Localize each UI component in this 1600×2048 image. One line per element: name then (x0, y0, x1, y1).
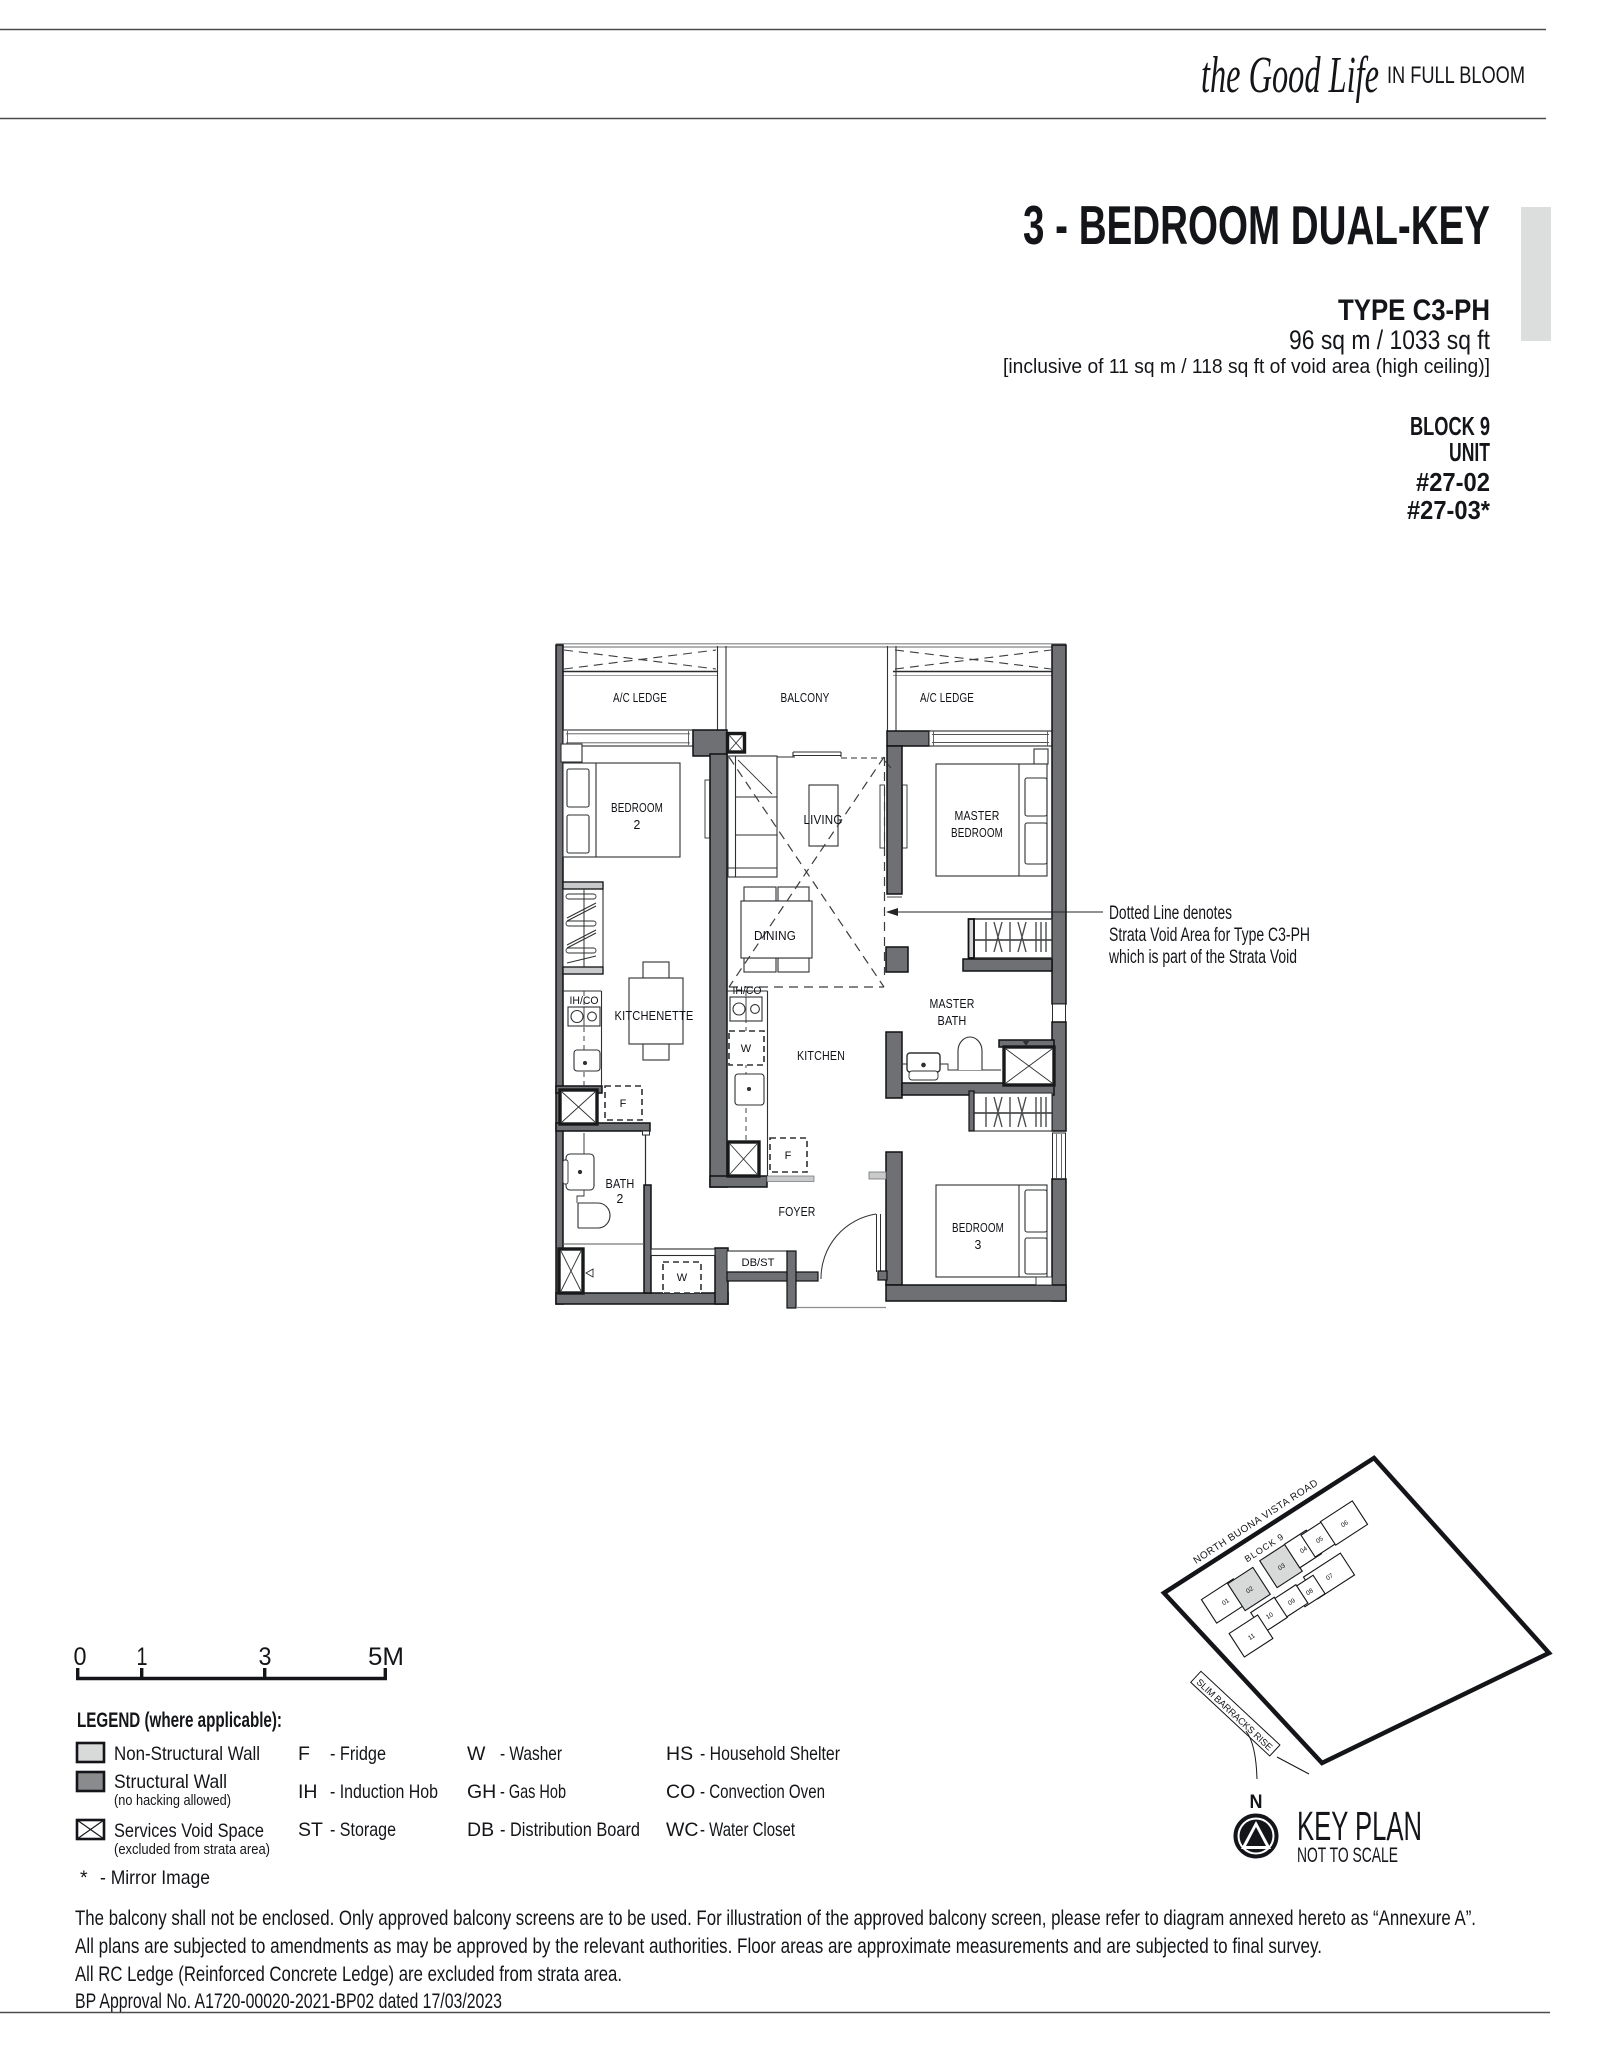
svg-text:BALCONY: BALCONY (781, 690, 830, 705)
svg-text:W: W (467, 1743, 486, 1765)
svg-text:LIVING: LIVING (804, 812, 843, 827)
svg-text:#27-02: #27-02 (1416, 467, 1490, 497)
svg-text:3 - BEDROOM DUAL-KEY: 3 - BEDROOM DUAL-KEY (1023, 194, 1490, 256)
svg-text:KEY PLAN: KEY PLAN (1297, 1803, 1422, 1849)
svg-text:- Distribution Board: - Distribution Board (500, 1819, 640, 1841)
svg-text:- Fridge: - Fridge (330, 1743, 386, 1765)
svg-text:GH: GH (467, 1781, 496, 1803)
svg-text:BATH: BATH (606, 1176, 635, 1191)
svg-text:- Washer: - Washer (500, 1743, 562, 1765)
svg-text:3: 3 (259, 1643, 272, 1671)
svg-text:1: 1 (137, 1643, 148, 1671)
svg-text:The balcony shall not be enclo: The balcony shall not be enclosed. Only … (75, 1907, 1476, 1930)
svg-text:BEDROOM: BEDROOM (611, 800, 663, 815)
svg-text:Strata Void Area for Type C3-P: Strata Void Area for Type C3-PH (1109, 925, 1310, 946)
svg-text:Non-Structural Wall: Non-Structural Wall (114, 1743, 260, 1765)
svg-text:(no hacking allowed): (no hacking allowed) (114, 1793, 231, 1809)
svg-text:the Good Life: the Good Life (1201, 47, 1379, 104)
svg-text:ST: ST (298, 1819, 323, 1841)
svg-text:#27-03*: #27-03* (1407, 495, 1491, 525)
svg-text:*: * (80, 1867, 88, 1889)
svg-text:KITCHEN: KITCHEN (797, 1048, 845, 1063)
svg-text:DB/ST: DB/ST (742, 1257, 775, 1269)
svg-text:BEDROOM: BEDROOM (951, 825, 1003, 840)
svg-text:UNIT: UNIT (1449, 437, 1490, 467)
svg-text:Structural Wall: Structural Wall (114, 1771, 227, 1793)
svg-text:FOYER: FOYER (779, 1204, 816, 1219)
svg-text:- Storage: - Storage (330, 1819, 396, 1841)
svg-text:F: F (298, 1743, 310, 1765)
svg-text:TYPE C3-PH: TYPE C3-PH (1338, 294, 1490, 327)
svg-text:DB: DB (467, 1819, 494, 1841)
svg-text:Services Void Space: Services Void Space (114, 1820, 264, 1842)
svg-text:WC: WC (666, 1819, 699, 1841)
svg-text:- Induction Hob: - Induction Hob (330, 1781, 438, 1803)
svg-text:- Water Closet: - Water Closet (700, 1819, 795, 1841)
svg-text:DINING: DINING (754, 928, 796, 943)
svg-text:5M: 5M (368, 1643, 404, 1671)
svg-text:W: W (677, 1272, 688, 1284)
svg-text:W: W (741, 1043, 752, 1055)
svg-text:BEDROOM: BEDROOM (952, 1220, 1004, 1235)
svg-text:- Mirror Image: - Mirror Image (100, 1867, 210, 1889)
svg-text:A/C LEDGE: A/C LEDGE (920, 690, 974, 705)
svg-text:BATH: BATH (938, 1013, 967, 1028)
svg-text:NOT TO SCALE: NOT TO SCALE (1297, 1844, 1398, 1867)
svg-text:F: F (620, 1098, 627, 1110)
svg-text:All RC Ledge (Reinforced Concr: All RC Ledge (Reinforced Concrete Ledge)… (75, 1963, 622, 1986)
svg-text:(excluded from strata area): (excluded from strata area) (114, 1842, 270, 1858)
svg-text:- Gas Hob: - Gas Hob (500, 1781, 566, 1803)
svg-text:CO: CO (666, 1781, 695, 1803)
svg-text:All plans are subjected to ame: All plans are subjected to amendments as… (75, 1935, 1322, 1958)
svg-text:3: 3 (975, 1237, 982, 1252)
svg-text:N: N (1250, 1792, 1263, 1813)
svg-text:IH/CO: IH/CO (570, 995, 599, 1007)
svg-text:F: F (785, 1150, 792, 1162)
svg-text:2: 2 (634, 817, 641, 832)
svg-text:which is part of the Strata Vo: which is part of the Strata Void (1108, 947, 1297, 968)
svg-text:96 sq m / 1033 sq ft: 96 sq m / 1033 sq ft (1289, 325, 1490, 355)
svg-text:HS: HS (666, 1743, 693, 1765)
svg-text:- Convection Oven: - Convection Oven (700, 1781, 825, 1803)
svg-text:IN FULL BLOOM: IN FULL BLOOM (1387, 62, 1525, 89)
svg-text:IH/CO: IH/CO (733, 985, 762, 997)
svg-text:KITCHENETTE: KITCHENETTE (615, 1008, 694, 1023)
svg-text:LEGEND (where applicable):: LEGEND (where applicable): (77, 1709, 282, 1732)
svg-text:IH: IH (298, 1781, 318, 1803)
svg-text:MASTER: MASTER (930, 996, 975, 1011)
svg-text:- Household Shelter: - Household Shelter (700, 1743, 840, 1765)
svg-text:A/C LEDGE: A/C LEDGE (613, 690, 667, 705)
svg-text:MASTER: MASTER (955, 808, 1000, 823)
svg-text:0: 0 (74, 1643, 87, 1671)
svg-text:Dotted Line denotes: Dotted Line denotes (1109, 903, 1232, 924)
svg-text:[inclusive of 11 sq m / 118 sq: [inclusive of 11 sq m / 118 sq ft of voi… (1003, 355, 1490, 378)
svg-text:2: 2 (617, 1191, 624, 1206)
svg-text:BP Approval No. A1720-00020-20: BP Approval No. A1720-00020-2021-BP02 da… (75, 1990, 502, 2013)
